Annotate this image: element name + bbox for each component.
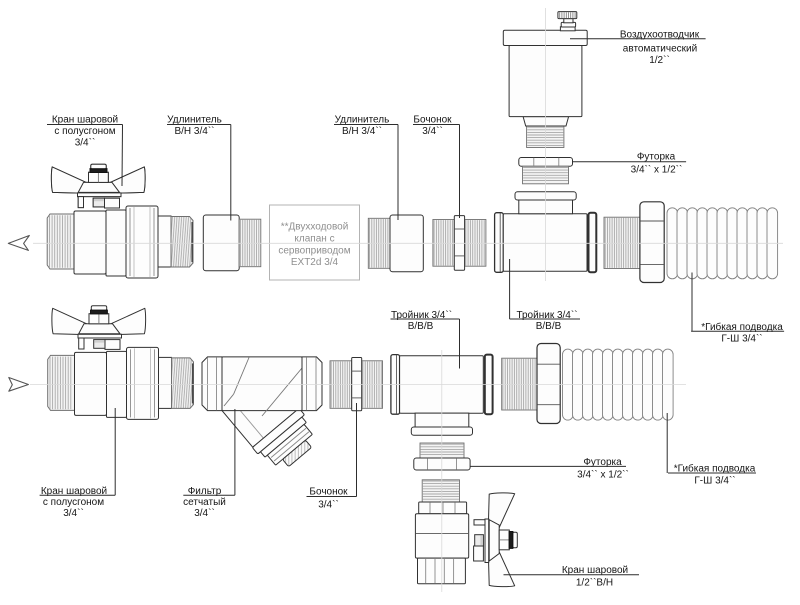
svg-text:3/4`` x 1/2``: 3/4`` x 1/2`` (577, 468, 629, 480)
svg-text:В/В/В: В/В/В (408, 321, 434, 332)
svg-text:В/Н 3/4``: В/Н 3/4`` (174, 125, 214, 137)
svg-text:сетчатый: сетчатый (183, 497, 226, 508)
svg-text:с полусгоном: с полусгоном (43, 497, 104, 508)
svg-text:1/2``В/Н: 1/2``В/Н (576, 577, 613, 589)
svg-text:Удлинитель: Удлинитель (167, 115, 222, 126)
svg-text:**Двухходовой: **Двухходовой (281, 222, 349, 233)
svg-text:В/Н 3/4``: В/Н 3/4`` (342, 125, 382, 137)
svg-text:Кран шаровой: Кран шаровой (52, 115, 118, 126)
svg-text:Удлинитель: Удлинитель (335, 115, 390, 126)
svg-text:3/4`` x 1/2``: 3/4`` x 1/2`` (631, 164, 683, 176)
svg-text:1/2``: 1/2`` (649, 54, 670, 66)
svg-text:3/4``: 3/4`` (422, 125, 443, 137)
svg-text:3/4``: 3/4`` (194, 507, 215, 519)
svg-text:Бочонок: Бочонок (413, 115, 452, 126)
svg-text:автоматический: автоматический (623, 44, 697, 55)
svg-text:Г-Ш 3/4``: Г-Ш 3/4`` (694, 474, 735, 486)
svg-text:с полусгоном: с полусгоном (54, 126, 115, 137)
svg-text:EXT2d 3/4: EXT2d 3/4 (291, 257, 339, 268)
svg-text:клапан с: клапан с (294, 233, 334, 244)
svg-text:Футорка: Футорка (637, 152, 676, 163)
svg-text:3/4``: 3/4`` (318, 499, 339, 511)
svg-text:3/4``: 3/4`` (75, 137, 96, 149)
svg-text:3/4``: 3/4`` (63, 507, 84, 519)
svg-text:сервоприводом: сервоприводом (278, 245, 350, 256)
svg-text:Бочонок: Бочонок (309, 487, 348, 498)
svg-text:В/В/В: В/В/В (536, 321, 562, 332)
svg-text:Г-Ш 3/4``: Г-Ш 3/4`` (721, 332, 762, 344)
